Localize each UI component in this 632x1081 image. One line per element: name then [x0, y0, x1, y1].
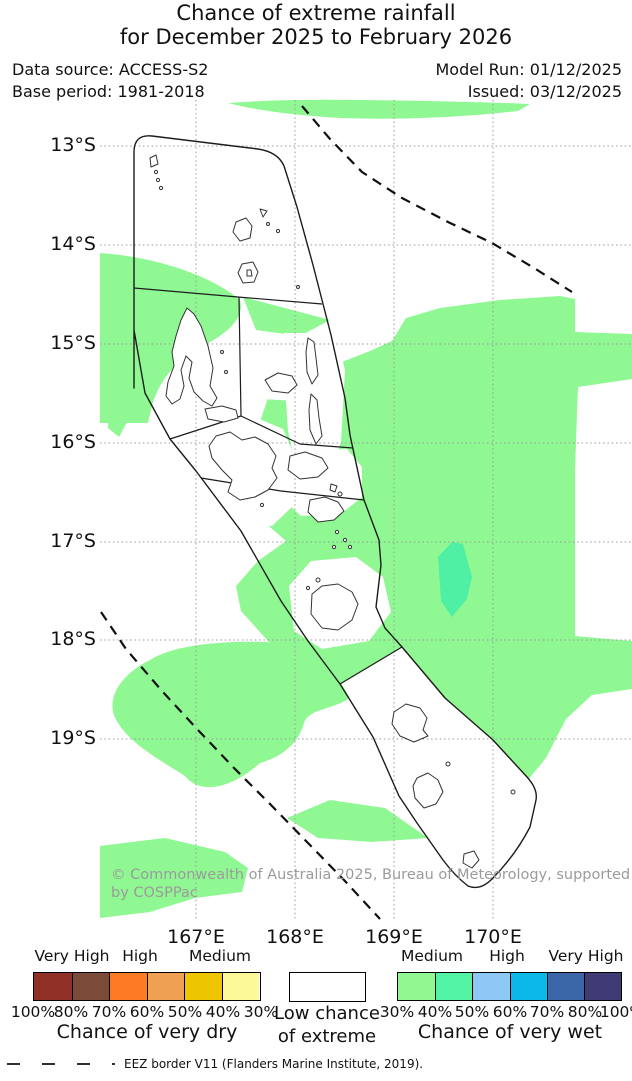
y-tick-19s: 19°S: [30, 727, 96, 749]
eez-dashed-northeast: [302, 106, 572, 292]
low-chance-caption-1: Low chance: [274, 1003, 380, 1024]
y-tick-13s: 13°S: [30, 134, 96, 156]
island-torres: [150, 155, 158, 167]
dry-swatch-80: [72, 973, 110, 1000]
dry-colorbar: [33, 972, 261, 1001]
wet-header-medium: Medium: [401, 947, 463, 965]
wet-swatch-80: [584, 973, 621, 1000]
dry-swatch-40: [222, 973, 260, 1000]
island-vanua-lava: [233, 218, 252, 241]
wet-tick-40: 40%: [418, 1003, 452, 1021]
copyright-watermark: © Commonwealth of Australia 2025, Bureau…: [111, 866, 630, 902]
y-tick-15s: 15°S: [30, 332, 96, 354]
dry-swatch-60: [147, 973, 185, 1000]
wet-tick-100: 100%: [600, 1003, 632, 1021]
dry-swatch-70: [109, 973, 147, 1000]
dry-swatch-50: [184, 973, 222, 1000]
y-tick-17s: 17°S: [30, 530, 96, 552]
wet-swatch-50: [472, 973, 509, 1000]
wet-swatch-60: [510, 973, 547, 1000]
dry-tick-50: 50%: [168, 1003, 202, 1021]
x-tick-169e: 169°E: [359, 926, 429, 948]
green-top-strip: [228, 100, 530, 119]
wet-tick-80: 80%: [568, 1003, 602, 1021]
rainfall-forecast-page: Chance of extreme rainfall for December …: [0, 0, 632, 1081]
island-malo: [205, 406, 238, 422]
x-tick-167e: 167°E: [161, 926, 231, 948]
dry-tick-60: 60%: [130, 1003, 164, 1021]
dry-tick-100: 100%: [11, 1003, 55, 1021]
y-tick-16s: 16°S: [30, 431, 96, 453]
island-gaua: [238, 262, 258, 283]
low-chance-swatch: [289, 972, 366, 1002]
watermark-line-2: by COSPPac: [111, 884, 630, 902]
eez-dash-sample: [5, 1059, 117, 1069]
y-tick-18s: 18°S: [30, 628, 96, 650]
wet-header-high: High: [489, 947, 525, 965]
wet-30-40-regions: [100, 100, 632, 918]
island-mota-lava: [260, 209, 267, 217]
wet-tick-50: 50%: [455, 1003, 489, 1021]
dry-swatch-100: [34, 973, 72, 1000]
dry-header-medium: Medium: [189, 947, 251, 965]
eez-footnote-text: EEZ border V11 (Flanders Marine Institut…: [124, 1057, 423, 1071]
x-tick-168e: 168°E: [260, 926, 330, 948]
low-chance-caption-2: of extreme: [278, 1026, 376, 1047]
dry-tick-40: 40%: [206, 1003, 240, 1021]
wet-tick-30: 30%: [380, 1003, 414, 1021]
y-tick-14s: 14°S: [30, 233, 96, 255]
wet-caption: Chance of very wet: [418, 1021, 602, 1043]
dry-tick-30: 30%: [244, 1003, 278, 1021]
wet-header-very-high: Very High: [548, 947, 623, 965]
eez-footnote: EEZ border V11 (Flanders Marine Institut…: [5, 1057, 423, 1071]
wet-tick-60: 60%: [493, 1003, 527, 1021]
wet-swatch-30: [398, 973, 435, 1000]
watermark-line-1: © Commonwealth of Australia 2025, Bureau…: [111, 866, 630, 884]
wet-colorbar: [397, 972, 622, 1001]
green-southwest-blob: [112, 642, 353, 787]
wet-tick-70: 70%: [530, 1003, 564, 1021]
wet-swatch-70: [547, 973, 584, 1000]
dry-header-very-high: Very High: [34, 947, 109, 965]
dry-tick-70: 70%: [92, 1003, 126, 1021]
green-penama-tongue: [243, 297, 330, 336]
dry-caption: Chance of very dry: [57, 1021, 238, 1043]
x-tick-170e: 170°E: [458, 926, 528, 948]
wet-swatch-40: [435, 973, 472, 1000]
dry-header-high: High: [122, 947, 158, 965]
dry-tick-80: 80%: [54, 1003, 88, 1021]
